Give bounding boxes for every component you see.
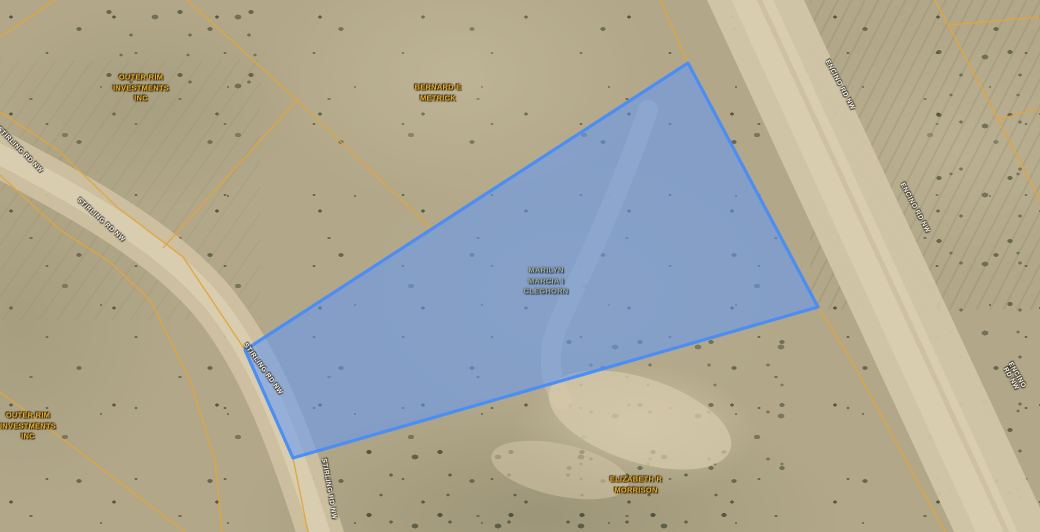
parcel-line	[0, 392, 185, 532]
parcel-line	[935, 0, 1040, 200]
selected-parcel-polygon[interactable]	[245, 63, 818, 458]
parcel-line	[950, 17, 1040, 25]
map-viewport[interactable]: OUTER RIM INVESTMENTS INC BERNARD E METR…	[0, 0, 1040, 532]
parcel-line	[187, 0, 432, 229]
map-canvas	[0, 0, 1040, 532]
parcel-line	[0, 0, 55, 37]
parcel-line	[163, 100, 297, 248]
parcel-line	[997, 108, 1040, 120]
